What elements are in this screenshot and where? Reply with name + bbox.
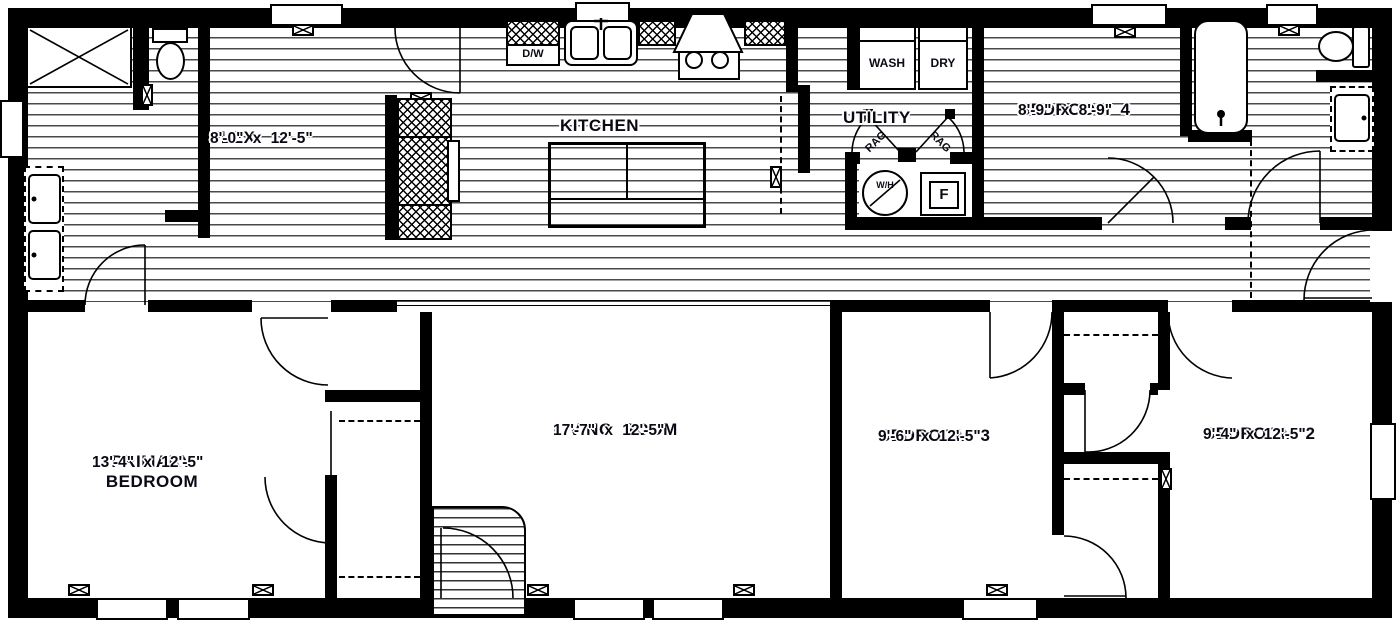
door-flex (395, 28, 460, 93)
door-back (1304, 230, 1374, 300)
door-bed2-closet (1085, 390, 1150, 452)
door-bedroom3 (990, 312, 1052, 378)
faucet-icon (594, 18, 608, 30)
door-bath2 (1248, 151, 1320, 223)
shower-x-icon (30, 30, 128, 84)
room-name: UTILITY (843, 108, 911, 128)
door-bath1 (85, 245, 145, 305)
fixtures-overlay (0, 0, 1400, 626)
room-dims: 8'-0" x 12'-5" (210, 130, 313, 148)
room-dims: 8'-9" x 8'-9" (1018, 102, 1112, 120)
range-hood-icon (674, 14, 742, 52)
room-name: KITCHEN (560, 116, 639, 136)
faucet-dot-icon (32, 253, 37, 258)
door-front-entry (441, 528, 513, 598)
tub-drain-icon (1217, 110, 1225, 118)
room-dims: 9'-4" x 12'-5" (1203, 426, 1306, 444)
faucet-dot-icon (1362, 116, 1367, 121)
room-dims: 13'-4" x 12'-5" (92, 454, 203, 472)
door-bedroom4 (1108, 158, 1173, 223)
water-heater-line (870, 180, 900, 206)
door-primary-bedroom (261, 318, 328, 385)
door-bedroom2 (1168, 312, 1232, 378)
door-primary-closet (265, 411, 331, 543)
door-bed3-closet (1064, 536, 1126, 598)
floor-plan: D/W WASH DRY W/H F (0, 0, 1400, 626)
room-dims: 17'-7" x 12'-5" (553, 422, 664, 440)
room-dims: 9'-6" x 12'-5" (878, 428, 981, 446)
faucet-dot-icon (32, 197, 37, 202)
door-hinge-block (945, 109, 955, 119)
